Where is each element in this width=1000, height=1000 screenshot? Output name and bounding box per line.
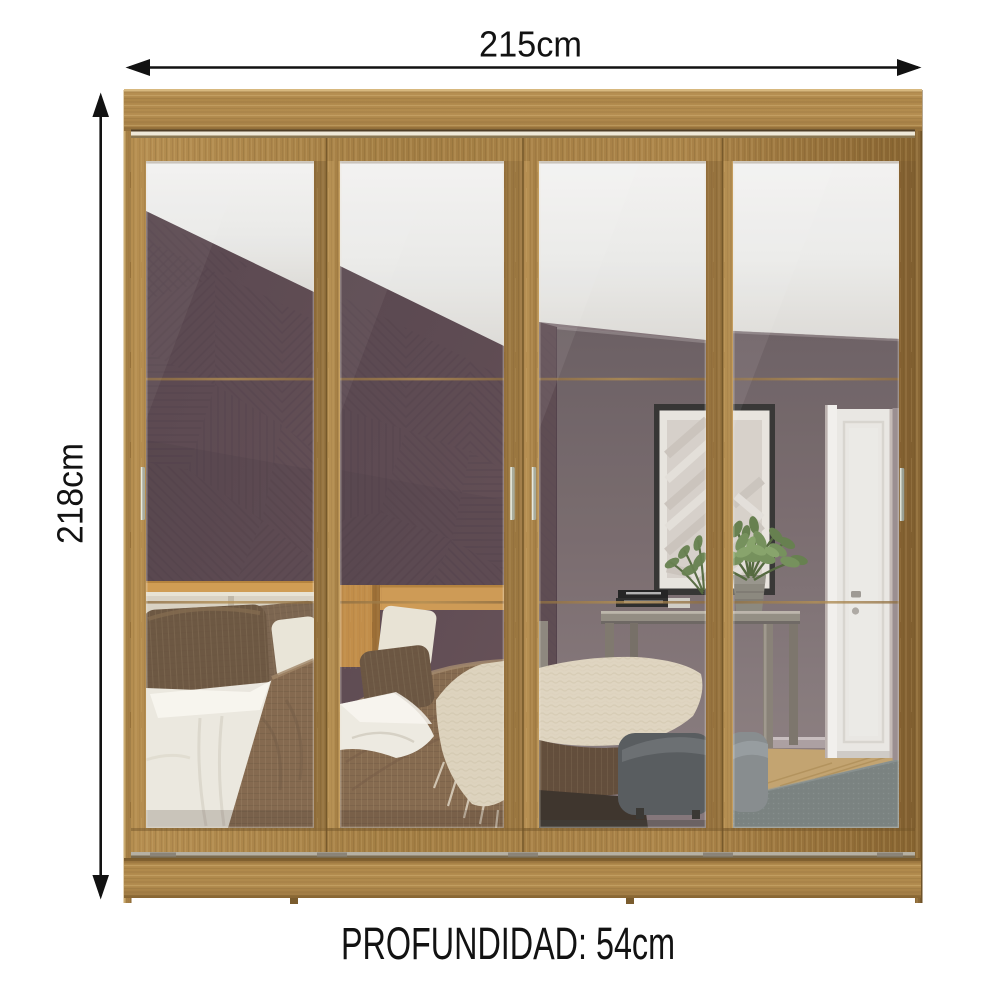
svg-text:PROFUNDIDAD: 54cm: PROFUNDIDAD: 54cm [341, 918, 675, 969]
svg-text:215cm: 215cm [479, 24, 582, 65]
svg-text:218cm: 218cm [50, 443, 91, 544]
